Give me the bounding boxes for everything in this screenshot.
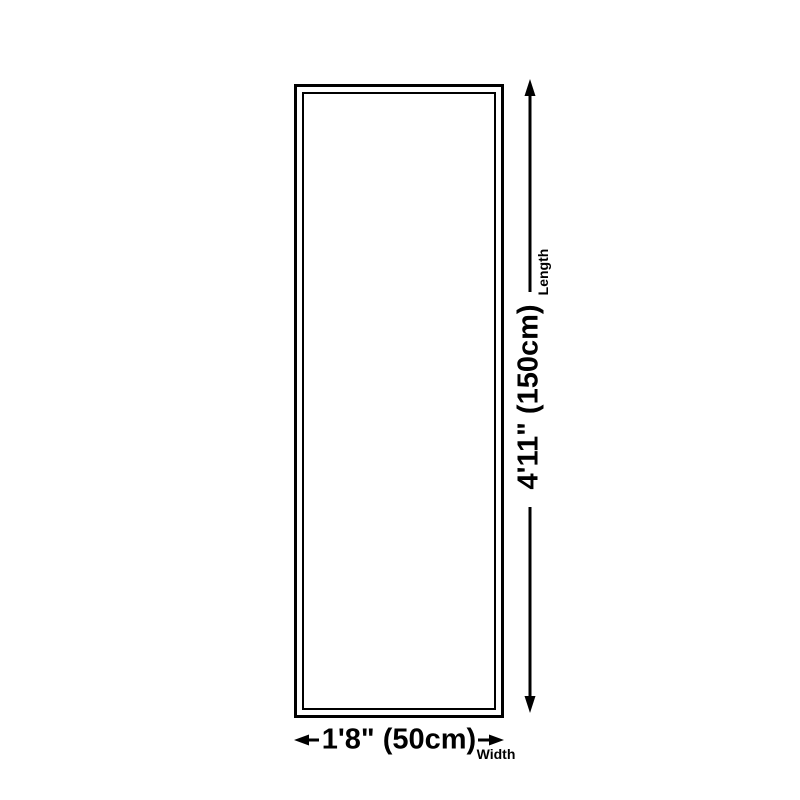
dimension-diagram: 4'11" (150cm) Length 1'8" (50cm) Width [0, 0, 800, 800]
length-axis-label: Length [535, 249, 551, 296]
length-arrow-down-icon [525, 507, 536, 713]
width-arrow-left-icon [294, 735, 319, 746]
length-arrow-up-icon [525, 79, 536, 292]
width-axis-label: Width [477, 746, 516, 762]
width-arrow-right-icon [478, 735, 504, 746]
dimension-arrows [0, 0, 800, 800]
length-dimension-value: 4'11" (150cm) [513, 304, 546, 489]
width-dimension-value: 1'8" (50cm) [322, 724, 476, 757]
